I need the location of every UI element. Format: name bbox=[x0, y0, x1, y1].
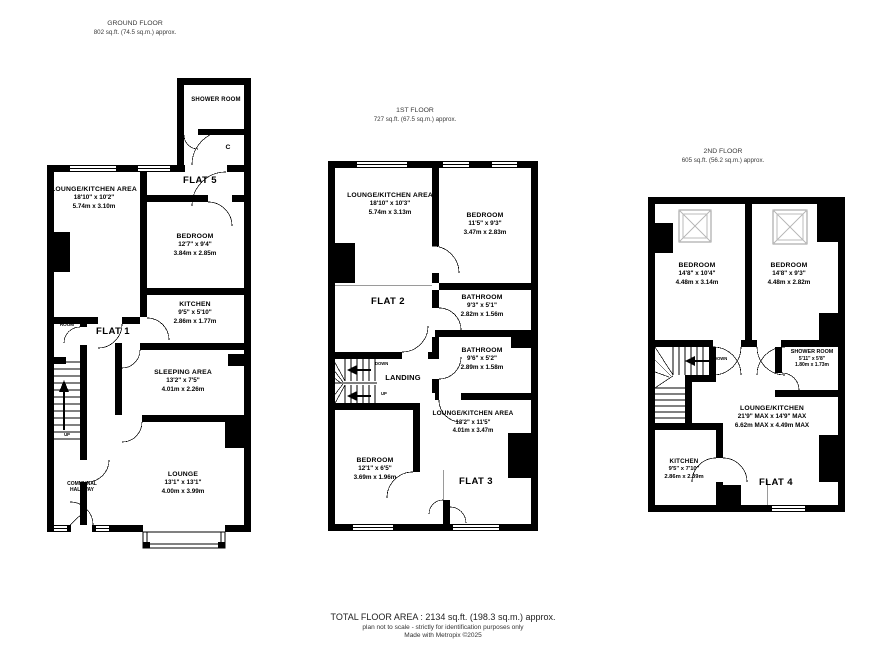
room-name: FLAT 2 bbox=[371, 296, 405, 307]
room-label-bedroom-right-s: BEDROOM 14'8" x 9'3" 4.48m x 2.82m bbox=[741, 261, 837, 287]
room-dims-metric: 2.89m x 1.58m bbox=[432, 364, 532, 373]
room-dims-imperial: 9'6" x 5'2" bbox=[432, 355, 532, 364]
flat-2-label: FLAT 2 bbox=[356, 296, 420, 307]
room-name: SLEEPING AREA bbox=[135, 368, 231, 377]
room-label-communal-hallway: COMMUNAL HALLWAY bbox=[57, 481, 107, 494]
flat-1-label: FLAT 1 bbox=[81, 326, 145, 337]
room-name: FLAT 3 bbox=[459, 476, 493, 487]
room-dims-imperial: 14'8" x 10'4" bbox=[649, 270, 745, 279]
stairs-down-label-s: DOWN bbox=[714, 357, 734, 362]
room-name: LOUNGE/KITCHEN AREA bbox=[420, 410, 526, 419]
room-name: UP bbox=[381, 391, 387, 396]
room-dims-imperial: 18'10" x 10'2" bbox=[49, 194, 139, 203]
stairs-up-label-g: UP bbox=[59, 433, 75, 438]
room-name: DOWN bbox=[714, 356, 727, 361]
room-label-lounge-kitchen-f2: LOUNGE/KITCHEN AREA 18'10" x 10'3" 5.74m… bbox=[340, 191, 440, 217]
room-dims-imperial: 13'2" x 11'5" bbox=[420, 419, 526, 427]
room-name: COMMUNAL HALLWAY bbox=[67, 481, 97, 493]
room-name: FLAT 5 bbox=[183, 175, 217, 186]
up-arrow-icon bbox=[59, 380, 69, 430]
floor-area-text: 727 sq.ft. (67.5 sq.m.) approx. bbox=[340, 116, 490, 124]
total-floor-area: TOTAL FLOOR AREA : 2134 sq.ft. (198.3 sq… bbox=[0, 611, 886, 624]
room-name: BEDROOM bbox=[649, 261, 745, 270]
floor-title-text: 2ND FLOOR bbox=[648, 147, 798, 157]
skylight-left bbox=[679, 210, 711, 242]
room-name: LOUNGE/KITCHEN AREA bbox=[49, 185, 139, 194]
room-dims-imperial: 21'9" MAX x 14'9" MAX bbox=[697, 413, 847, 422]
room-dims-imperial: 13'1" x 13'1" bbox=[135, 479, 231, 488]
room-dims-metric: 5.74m x 3.13m bbox=[340, 209, 440, 218]
room-label-lounge-kitchen-s: LOUNGE/KITCHEN 21'9" MAX x 14'9" MAX 6.6… bbox=[697, 404, 847, 430]
room-dims-metric: 4.01m x 2.26m bbox=[135, 386, 231, 395]
room-label-bedroom-left-s: BEDROOM 14'8" x 10'4" 4.48m x 3.14m bbox=[649, 261, 745, 287]
room-name: DOWN bbox=[375, 361, 388, 366]
room-name: BEDROOM bbox=[147, 232, 243, 241]
room-label-kitchen-g: KITCHEN 9'5" x 5'10" 2.86m x 1.77m bbox=[147, 300, 243, 326]
room-name: SHOWER ROOM bbox=[776, 349, 848, 356]
stairs-up-label-f: UP bbox=[381, 392, 397, 397]
stairs-down-label-f: DOWN bbox=[375, 362, 395, 367]
flat-3-label: FLAT 3 bbox=[444, 476, 508, 487]
room-name: SHOWER ROOM bbox=[57, 316, 78, 327]
room-dims-metric: 6.62m MAX x 4.49m MAX bbox=[697, 422, 847, 431]
flat-5-label: FLAT 5 bbox=[168, 175, 232, 186]
room-label-sleeping-area: SLEEPING AREA 13'2" x 7'5" 4.01m x 2.26m bbox=[135, 368, 231, 394]
room-label-lounge-kitchen-g: LOUNGE/KITCHEN AREA 18'10" x 10'2" 5.74m… bbox=[49, 185, 139, 211]
floor-area-text: 802 sq.ft. (74.5 sq.m.) approx. bbox=[60, 29, 210, 37]
room-label-bathroom-1: BATHROOM 9'3" x 5'1" 2.82m x 1.56m bbox=[432, 293, 532, 319]
room-name: LOUNGE/KITCHEN bbox=[697, 404, 847, 413]
room-dims-metric: 3.84m x 2.85m bbox=[147, 250, 243, 259]
room-name: BEDROOM bbox=[741, 261, 837, 270]
room-dims-metric: 4.48m x 3.14m bbox=[649, 279, 745, 288]
footer: TOTAL FLOOR AREA : 2134 sq.ft. (198.3 sq… bbox=[0, 611, 886, 641]
room-dims-metric: 4.48m x 2.82m bbox=[741, 279, 837, 288]
room-dims-metric: 4.00m x 3.99m bbox=[135, 488, 231, 497]
room-dims-metric: 3.69m x 1.96m bbox=[327, 474, 423, 483]
room-name: LOUNGE/KITCHEN AREA bbox=[340, 191, 440, 200]
down-arrow-icon bbox=[347, 365, 371, 375]
room-label-bedroom-g: BEDROOM 12'7" x 9'4" 3.84m x 2.85m bbox=[147, 232, 243, 258]
second-windows bbox=[772, 505, 805, 512]
room-dims-imperial: 9'5" x 5'10" bbox=[147, 309, 243, 318]
room-label-bedroom-f3: BEDROOM 12'1" x 6'5" 3.69m x 1.96m bbox=[327, 456, 423, 482]
landing-label: LANDING bbox=[373, 373, 433, 383]
room-name: LANDING bbox=[385, 373, 421, 382]
room-label-cupboard: C bbox=[218, 143, 238, 152]
room-dims-imperial: 12'7" x 9'4" bbox=[147, 241, 243, 250]
room-name: KITCHEN bbox=[648, 458, 720, 466]
room-dims-imperial: 12'1" x 6'5" bbox=[327, 465, 423, 474]
floor-title-text: GROUND FLOOR bbox=[60, 19, 210, 29]
room-dims-metric: 3.47m x 2.83m bbox=[435, 229, 535, 238]
room-dims-metric: 4.01m x 3.47m bbox=[420, 427, 526, 435]
room-name: BATHROOM bbox=[432, 293, 532, 302]
down-arrow-icon bbox=[685, 356, 713, 366]
room-label-bedroom-f2: BEDROOM 11'5" x 9'3" 3.47m x 2.83m bbox=[435, 211, 535, 237]
room-dims-metric: 2.86m x 2.39m bbox=[648, 474, 720, 482]
first-stairs bbox=[333, 359, 377, 407]
room-label-lounge-g: LOUNGE 13'1" x 13'1" 4.00m x 3.99m bbox=[135, 470, 231, 496]
room-name: FLAT 1 bbox=[96, 326, 130, 337]
room-label-shower-room-small: SHOWER ROOM bbox=[50, 316, 84, 327]
room-name: LOUNGE bbox=[135, 470, 231, 479]
room-dims-imperial: 14'8" x 9'3" bbox=[741, 270, 837, 279]
skylight-right bbox=[773, 210, 807, 244]
room-name: C bbox=[225, 144, 230, 151]
floor-area-text: 605 sq.ft. (56.2 sq.m.) approx. bbox=[648, 157, 798, 165]
flat-4-label: FLAT 4 bbox=[744, 477, 808, 488]
floor-title-text: 1ST FLOOR bbox=[340, 106, 490, 116]
room-label-lounge-kitchen-f3: LOUNGE/KITCHEN AREA 13'2" x 11'5" 4.01m … bbox=[420, 410, 526, 435]
room-dims-metric: 2.86m x 1.77m bbox=[147, 318, 243, 327]
room-dims-metric: 5.74m x 3.10m bbox=[49, 203, 139, 212]
ground-floor-title: GROUND FLOOR 802 sq.ft. (74.5 sq.m.) app… bbox=[60, 19, 210, 37]
room-dims-imperial: 18'10" x 10'3" bbox=[340, 200, 440, 209]
room-name: BEDROOM bbox=[327, 456, 423, 465]
room-label-bathroom-2: BATHROOM 9'6" x 5'2" 2.89m x 1.58m bbox=[432, 346, 532, 372]
room-name: KITCHEN bbox=[147, 300, 243, 309]
room-name: BATHROOM bbox=[432, 346, 532, 355]
credit: Made with Metropix ©2025 bbox=[0, 632, 886, 641]
room-dims-imperial: 13'2" x 7'5" bbox=[135, 377, 231, 386]
first-floor-title: 1ST FLOOR 727 sq.ft. (67.5 sq.m.) approx… bbox=[340, 106, 490, 124]
room-name: BEDROOM bbox=[435, 211, 535, 220]
room-name: SHOWER ROOM bbox=[191, 97, 241, 103]
room-label-shower-room-annex: SHOWER ROOM bbox=[186, 96, 246, 104]
up-arrow-icon bbox=[347, 391, 371, 401]
second-floor-title: 2ND FLOOR 605 sq.ft. (56.2 sq.m.) approx… bbox=[648, 147, 798, 165]
room-name: FLAT 4 bbox=[759, 477, 793, 488]
room-dims-metric: 2.82m x 1.56m bbox=[432, 311, 532, 320]
room-dims-imperial: 9'3" x 5'1" bbox=[432, 302, 532, 311]
room-label-shower-room-s: SHOWER ROOM 5'11" x 5'8" 1.80m x 1.73m bbox=[776, 349, 848, 368]
bay-window bbox=[143, 532, 225, 548]
room-dims-imperial: 9'5" x 7'10" bbox=[648, 466, 720, 474]
room-dims-imperial: 11'5" x 9'3" bbox=[435, 220, 535, 229]
room-label-kitchen-s: KITCHEN 9'5" x 7'10" 2.86m x 2.39m bbox=[648, 458, 720, 482]
room-name: UP bbox=[64, 432, 70, 437]
room-dims-metric: 1.80m x 1.73m bbox=[776, 362, 848, 368]
floorplan-canvas: GROUND FLOOR 802 sq.ft. (74.5 sq.m.) app… bbox=[0, 0, 886, 667]
